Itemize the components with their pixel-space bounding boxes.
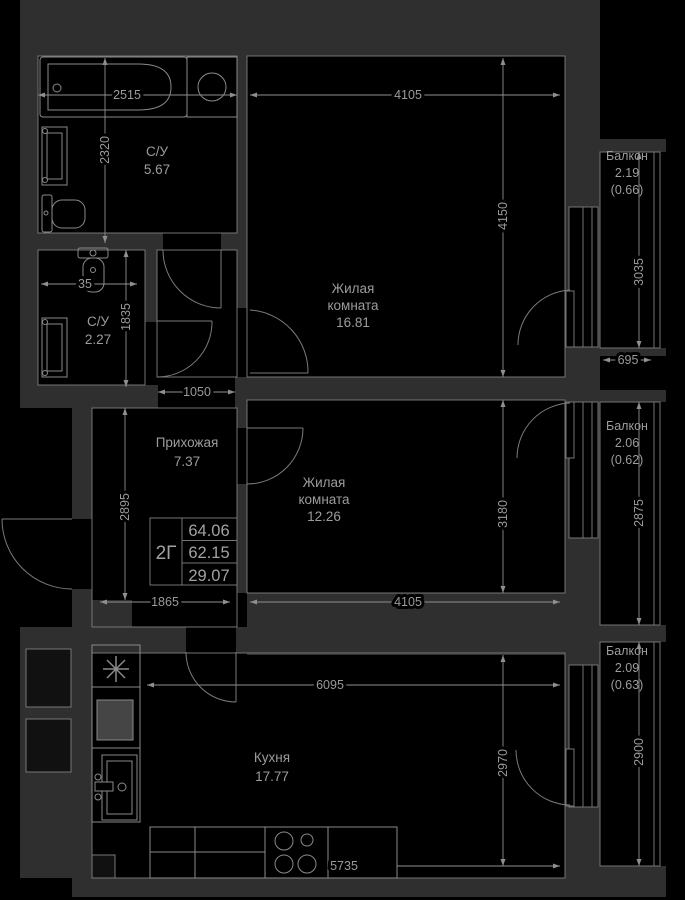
living-room-2-floor bbox=[247, 400, 565, 593]
kitchen-counter bbox=[150, 827, 397, 878]
washbasin-2 bbox=[42, 318, 67, 377]
bathtub bbox=[40, 57, 187, 117]
balcony-1-floor bbox=[600, 152, 660, 348]
dim-hall-passage: 1050 bbox=[183, 385, 211, 399]
apartment-info-box: 2Г 64.06 62.15 29.07 bbox=[150, 518, 237, 585]
apartment-living-area: 29.07 bbox=[188, 567, 229, 585]
balcony-3-area: 2.09 bbox=[615, 661, 639, 675]
bathroom-2-area: 2.27 bbox=[85, 332, 111, 347]
washbasin-1 bbox=[42, 127, 67, 185]
dim-bath2-width: 35 bbox=[78, 277, 92, 291]
dim-kitchen-bottom-width: 5735 bbox=[330, 859, 358, 873]
kitchen-area: 17.77 bbox=[255, 769, 289, 784]
dimension-lines bbox=[38, 58, 651, 866]
living-room-2-door bbox=[247, 428, 303, 484]
dim-balcony1-height: 3035 bbox=[632, 258, 646, 286]
ventilation-asterisk-icon bbox=[103, 656, 129, 682]
living-2-area: 12.26 bbox=[307, 509, 341, 524]
floor-plan-svg: 2Г 64.06 62.15 29.07 С/У 5.67 С/У 2.27 П… bbox=[0, 0, 685, 900]
bathroom-2-door bbox=[157, 321, 212, 377]
fridge bbox=[97, 700, 133, 740]
living-room-1-floor bbox=[247, 56, 565, 377]
living-1-label-line2: комната bbox=[327, 298, 379, 313]
dim-bath1-depth: 2320 bbox=[98, 136, 112, 164]
kitchen-label: Кухня bbox=[254, 750, 290, 765]
kitchen-sink bbox=[95, 755, 137, 820]
living-room-1-door bbox=[250, 310, 308, 373]
kitchen-corner-unit bbox=[92, 855, 115, 878]
living-1-area: 16.81 bbox=[336, 315, 370, 330]
bathroom-1-area: 5.67 bbox=[144, 162, 170, 177]
balcony-2-label: Балкон bbox=[606, 419, 648, 433]
balcony-2-door-swing bbox=[517, 403, 570, 458]
living-2-label-line2: комната bbox=[298, 492, 350, 507]
balcony-3-floor bbox=[600, 642, 660, 866]
dim-kitchen-depth: 2970 bbox=[496, 749, 510, 777]
apartment-type: 2Г bbox=[156, 543, 177, 564]
balcony-1-label: Балкон bbox=[606, 149, 648, 163]
toilet-1 bbox=[42, 195, 85, 232]
dim-room2-width: 4105 bbox=[394, 595, 422, 609]
washing-machine bbox=[187, 57, 237, 117]
dim-balcony2-height: 2875 bbox=[632, 499, 646, 527]
hallway-label: Прихожая bbox=[156, 435, 219, 450]
dim-balcony3-height: 2900 bbox=[632, 738, 646, 766]
balcony-3-door-swing bbox=[516, 750, 570, 805]
apartment-total-area: 64.06 bbox=[188, 522, 229, 540]
dim-bath1-width: 2515 bbox=[113, 88, 141, 102]
hallway-area: 7.37 bbox=[174, 454, 200, 469]
balcony-2-coefficient: (0.62) bbox=[611, 453, 644, 467]
floor-plan: 2Г 64.06 62.15 29.07 С/У 5.67 С/У 2.27 П… bbox=[0, 0, 685, 900]
balcony-3-label: Балкон bbox=[606, 644, 648, 658]
balcony-3-coefficient: (0.63) bbox=[611, 678, 644, 692]
dim-balcony1-width: 695 bbox=[618, 353, 639, 367]
bathroom-2-label: С/У bbox=[87, 314, 110, 329]
bathroom-1-floor bbox=[38, 56, 237, 233]
dimension-labels: 2515 4105 2320 35 1835 1050 2895 4150 31… bbox=[78, 88, 646, 873]
balcony-1-door-swing bbox=[518, 290, 570, 345]
living-2-label-line1: Жилая bbox=[303, 475, 346, 490]
balcony-3-window bbox=[566, 665, 598, 807]
corridor-pocket-floor bbox=[157, 250, 237, 377]
room-labels: С/У 5.67 С/У 2.27 Прихожая 7.37 Жилая ко… bbox=[85, 144, 648, 784]
balcony-1-coefficient: (0.66) bbox=[611, 183, 644, 197]
shaft-2 bbox=[26, 719, 71, 772]
balcony-1-area: 2.19 bbox=[615, 166, 639, 180]
balcony-1-window bbox=[566, 207, 598, 347]
windows bbox=[566, 207, 598, 807]
dim-hall-width: 1865 bbox=[151, 595, 179, 609]
living-1-label-line1: Жилая bbox=[332, 281, 375, 296]
kitchen-door bbox=[186, 652, 236, 702]
dim-hall-depth: 2895 bbox=[118, 493, 132, 521]
shaft-1 bbox=[26, 649, 71, 707]
bathroom-1-door bbox=[163, 250, 221, 308]
dim-room1-width: 4105 bbox=[394, 88, 422, 102]
dim-bath2-depth: 1835 bbox=[119, 303, 133, 331]
balcony-2-window bbox=[566, 402, 598, 538]
balcony-2-area: 2.06 bbox=[615, 436, 639, 450]
dim-room2-depth: 3180 bbox=[496, 500, 510, 528]
dim-room1-depth: 4150 bbox=[496, 202, 510, 230]
entrance-door bbox=[2, 519, 72, 589]
apartment-area-no-balcony: 62.15 bbox=[188, 544, 229, 562]
dim-kitchen-width: 6095 bbox=[316, 678, 344, 692]
bathroom-1-label: С/У bbox=[146, 144, 169, 159]
